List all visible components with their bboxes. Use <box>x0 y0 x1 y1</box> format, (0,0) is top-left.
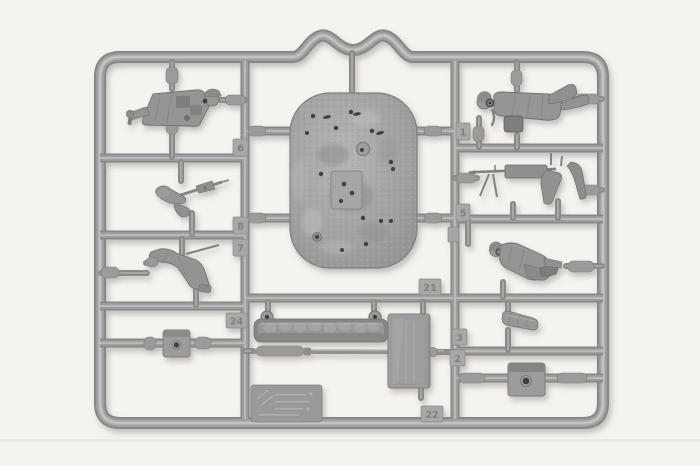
svg-text:7: 7 <box>237 244 244 255</box>
part-number-tag-1: 1 <box>456 123 470 140</box>
part-number-tag-5: 5 <box>456 204 470 221</box>
part-number-tag-8: 8 <box>233 217 248 234</box>
door-plate-part <box>388 314 430 388</box>
part-number-tag-22: 22 <box>421 406 443 422</box>
part-number-tag-2: 2 <box>450 350 465 366</box>
svg-text:2: 2 <box>454 354 461 365</box>
prone-pack <box>504 116 523 132</box>
svg-text:5: 5 <box>460 209 467 220</box>
photo-of-model-sprue: 6 8 7 1 5 21 2 <box>0 0 700 466</box>
hatch-square-right-part <box>508 363 545 396</box>
base-plate-part <box>290 93 417 268</box>
sprue-photo: 6 8 7 1 5 21 2 <box>0 0 700 466</box>
part-number-tag-6: 6 <box>233 139 248 156</box>
svg-text:24: 24 <box>230 317 244 328</box>
svg-text:3: 3 <box>456 333 463 344</box>
part-number-tag-21: 21 <box>419 279 441 295</box>
part-number-tag-24: 24 <box>226 313 247 328</box>
backdrop-seam <box>0 439 700 442</box>
officer-hand <box>126 110 134 118</box>
svg-text:1: 1 <box>460 128 467 139</box>
base-plate-centre-boss <box>331 171 362 209</box>
svg-text:8: 8 <box>237 222 244 233</box>
marking-plate-part <box>251 385 322 422</box>
blank-tab <box>448 227 459 242</box>
officer-face-shadow <box>203 99 208 104</box>
part-number-tag-7: 7 <box>233 239 248 256</box>
svg-text:21: 21 <box>423 283 436 294</box>
part-number-tag-3: 3 <box>452 329 467 345</box>
svg-text:22: 22 <box>425 410 438 421</box>
hatch-square-left-part <box>163 330 190 357</box>
svg-text:6: 6 <box>237 144 244 155</box>
